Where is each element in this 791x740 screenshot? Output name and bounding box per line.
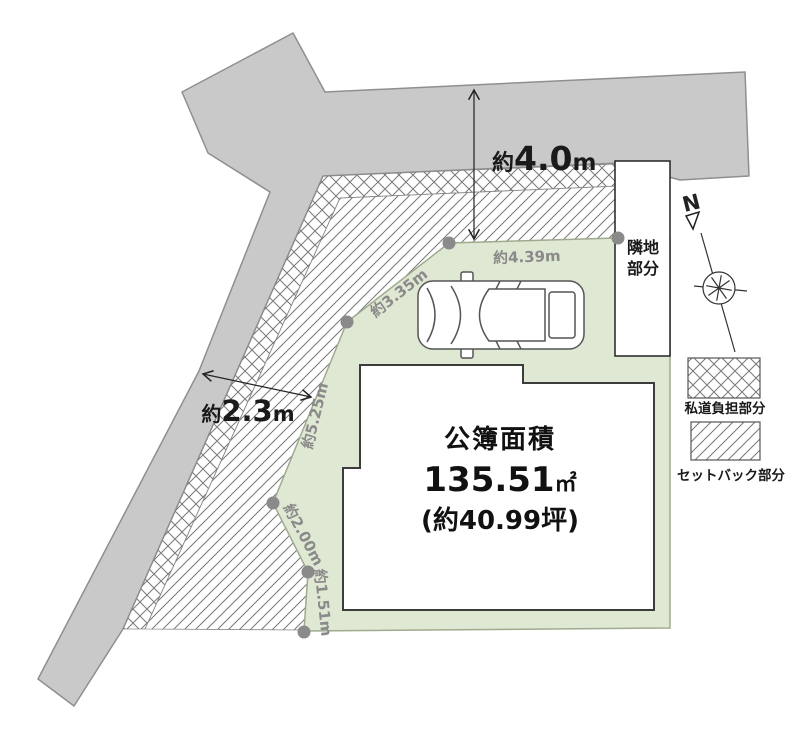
neighbor-label-line1: 隣地 xyxy=(627,238,659,257)
lot-plan-diagram: 隣地 部分 約4.39m 約3.35m 約5.25m 約2.00m 約1.51m… xyxy=(0,0,791,740)
legend-setback-swatch xyxy=(691,422,760,460)
legend-private-road-label: 私道負担部分 xyxy=(685,400,766,417)
boundary-vertex-dot xyxy=(612,232,625,245)
car-body xyxy=(418,281,584,349)
legend-private-road-swatch xyxy=(688,358,760,398)
lot-plan-canvas: 隣地 部分 約4.39m 約3.35m 約5.25m 約2.00m 約1.51m… xyxy=(0,0,791,740)
legend-setback-label: セットバック部分 xyxy=(677,467,785,484)
area-tsubo: (約40.99坪) xyxy=(421,505,579,536)
legend: 私道負担部分 セットバック部分 xyxy=(677,358,785,484)
compass: N xyxy=(680,189,747,352)
car-illustration xyxy=(418,272,584,358)
neighbor-label-line2: 部分 xyxy=(627,259,659,278)
area-value: 135.51㎡ xyxy=(423,460,576,500)
registered-area-text: 公簿面積 135.51㎡ (約40.99坪) xyxy=(421,425,579,536)
area-title: 公簿面積 xyxy=(444,425,556,455)
boundary-vertex-dot xyxy=(443,237,456,250)
boundary-length-top: 約4.39m xyxy=(493,247,561,267)
boundary-vertex-dot xyxy=(341,316,354,329)
neighbor-land-box: 隣地 部分 xyxy=(615,161,670,356)
boundary-vertex-dot xyxy=(298,626,311,639)
compass-rose-icon xyxy=(694,272,747,304)
boundary-vertex-dot xyxy=(267,497,280,510)
